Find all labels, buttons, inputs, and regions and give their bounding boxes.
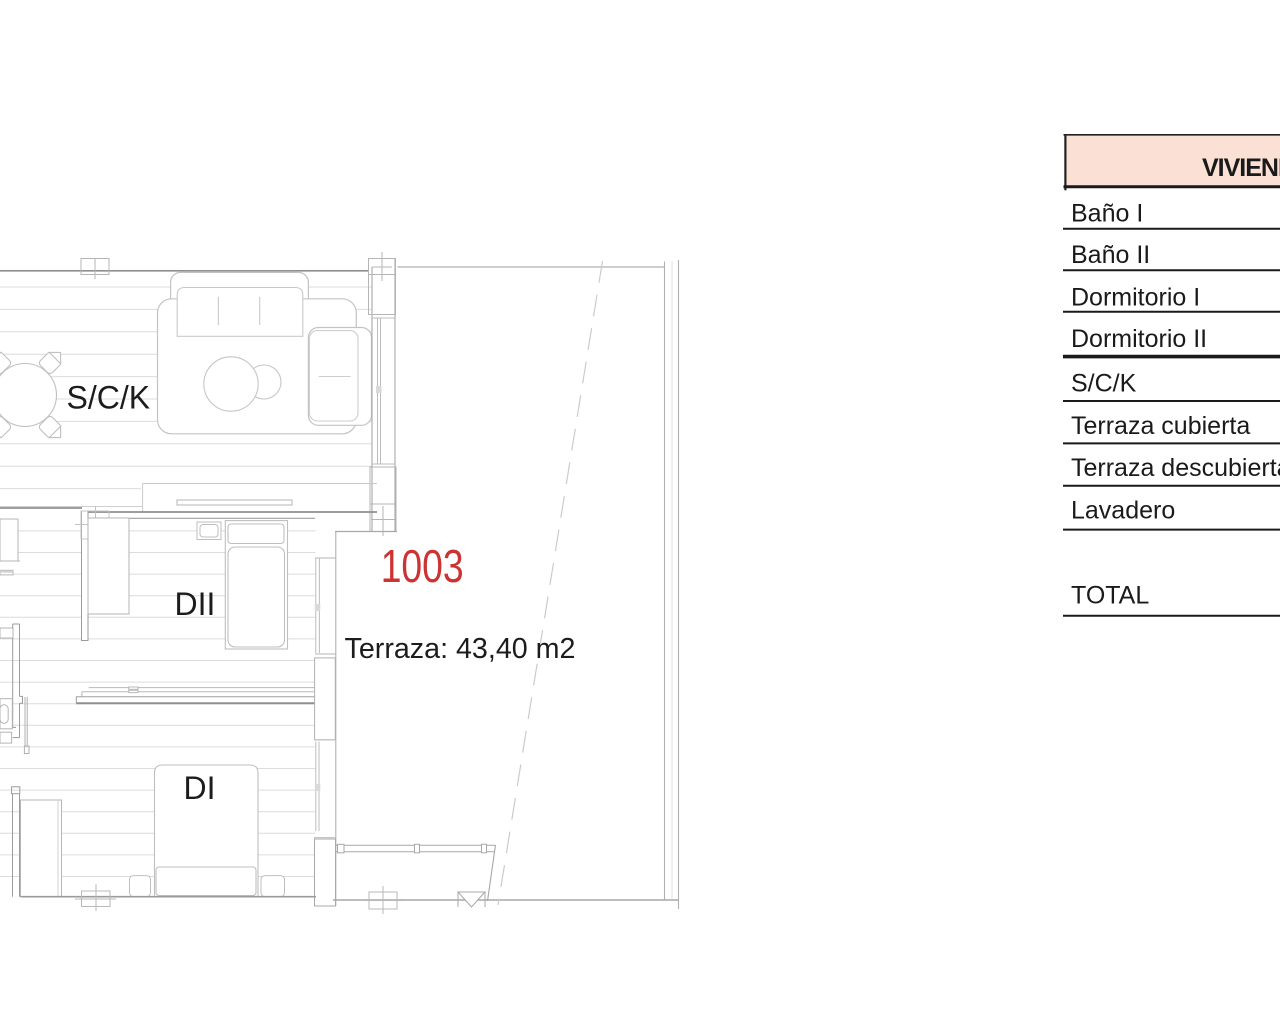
svg-text:Dormitorio I: Dormitorio I <box>1071 284 1200 312</box>
svg-text:Baño II: Baño II <box>1071 241 1150 269</box>
svg-text:Terraza cubierta: Terraza cubierta <box>1071 412 1250 440</box>
svg-text:DI: DI <box>184 770 216 806</box>
svg-text:DII: DII <box>175 586 216 622</box>
svg-text:Dormitorio II: Dormitorio II <box>1071 325 1207 353</box>
svg-text:TOTAL: TOTAL <box>1071 581 1149 609</box>
svg-text:Terraza descubierta: Terraza descubierta <box>1071 454 1280 482</box>
svg-text:Baño I: Baño I <box>1071 200 1143 228</box>
svg-text:S/C/K: S/C/K <box>1071 370 1137 398</box>
svg-text:VIVIENDA: VIVIENDA <box>1202 154 1280 182</box>
svg-text:Lavadero: Lavadero <box>1071 497 1175 525</box>
svg-text:S/C/K: S/C/K <box>67 380 151 416</box>
svg-text:1003: 1003 <box>381 540 464 592</box>
svg-text:Terraza: 43,40 m2: Terraza: 43,40 m2 <box>345 633 576 665</box>
